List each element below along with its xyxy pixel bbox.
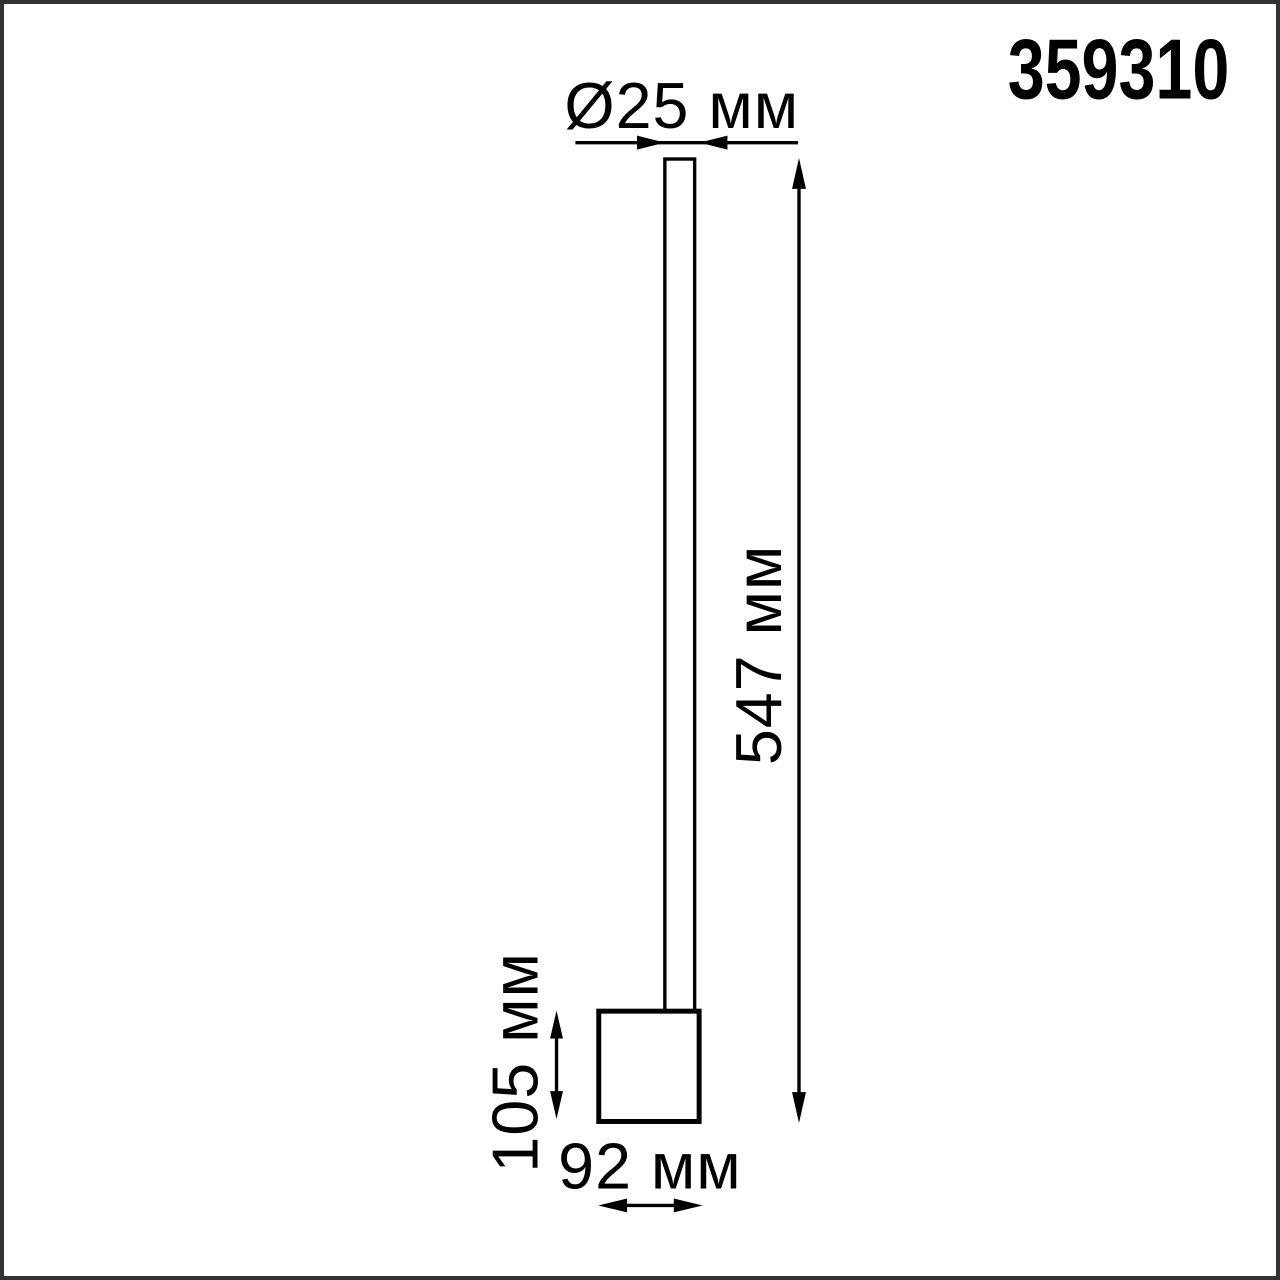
- arrow-down-icon: [792, 1092, 806, 1123]
- diameter-label: Ø25 мм: [564, 70, 799, 142]
- dimension-drawing: Ø25 мм 547 мм 105 мм 92 мм 359310: [4, 4, 1276, 1276]
- lamp-rod-shape: [665, 159, 695, 1014]
- arrow-up-icon: [550, 1011, 563, 1039]
- lamp-base-shape: [599, 1011, 699, 1121]
- base-width-label: 92 мм: [558, 1131, 742, 1203]
- arrow-up-icon: [792, 158, 806, 189]
- arrow-down-icon: [550, 1091, 563, 1119]
- base-width-dimension: 92 мм: [558, 1131, 742, 1213]
- total-height-label: 547 мм: [723, 545, 795, 765]
- total-height-dimension: 547 мм: [723, 158, 806, 1123]
- base-height-dimension: 105 мм: [480, 952, 563, 1172]
- diameter-dimension: Ø25 мм: [564, 70, 799, 149]
- drawing-page-frame: Ø25 мм 547 мм 105 мм 92 мм 359310: [0, 0, 1280, 1280]
- product-article: 359310: [1008, 22, 1230, 117]
- base-height-label: 105 мм: [480, 952, 552, 1172]
